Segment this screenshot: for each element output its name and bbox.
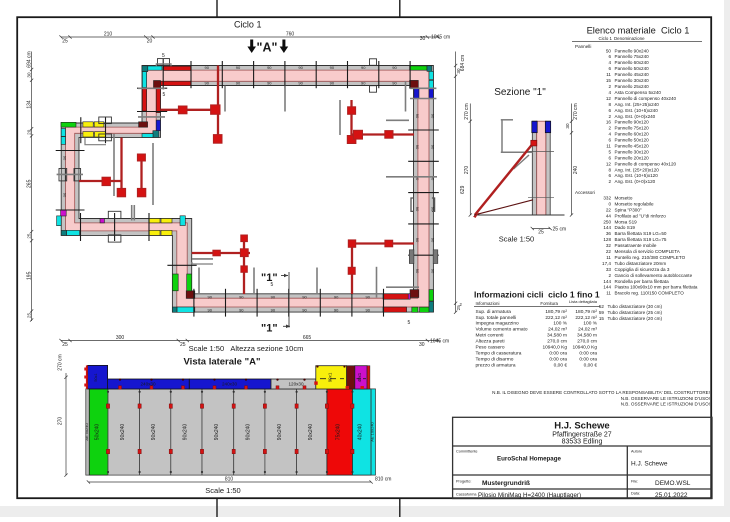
svg-text:90: 90 [415, 114, 420, 119]
svg-text:90: 90 [239, 308, 244, 313]
svg-text:Spina "P300": Spina "P300" [615, 207, 642, 212]
svg-text:2: 2 [608, 273, 611, 278]
svg-text:665: 665 [303, 335, 312, 341]
svg-text:Pannello 45x120: Pannello 45x120 [615, 144, 650, 149]
svg-text:180,79 m²: 180,79 m² [575, 309, 597, 315]
svg-text:H.J. Schewe: H.J. Schewe [554, 421, 609, 432]
svg-text:90: 90 [415, 238, 420, 243]
svg-text:270 cm: 270 cm [464, 103, 470, 119]
svg-text:Fornitura: Fornitura [540, 301, 558, 306]
svg-text:90: 90 [334, 308, 339, 313]
svg-text:6: 6 [608, 155, 611, 160]
svg-text:90: 90 [239, 295, 244, 300]
svg-text:6: 6 [608, 108, 611, 113]
svg-text:Dado S19: Dado S19 [615, 225, 636, 230]
svg-text:Pannello 45x240: Pannello 45x240 [615, 72, 650, 77]
svg-text:2: 2 [608, 126, 611, 131]
svg-text:144: 144 [603, 225, 611, 230]
svg-text:90x240: 90x240 [182, 424, 188, 441]
svg-text:Morsa S19: Morsa S19 [615, 219, 638, 224]
svg-text:222,12 m²: 222,12 m² [575, 315, 597, 321]
svg-text:Informazioni: Informazioni [476, 301, 500, 306]
svg-text:30: 30 [456, 68, 461, 74]
svg-text:H.J. Schewe: H.J. Schewe [631, 461, 668, 468]
svg-text:Data:: Data: [631, 492, 640, 496]
svg-text:90: 90 [267, 80, 272, 85]
svg-text:Pannello di compenso 40x120: Pannello di compenso 40x120 [615, 161, 677, 166]
svg-text:5: 5 [162, 53, 165, 59]
svg-text:90: 90 [302, 308, 307, 313]
svg-text:265: 265 [27, 179, 33, 188]
svg-text:Pilosio MiniMag H=2400 (Hauptl: Pilosio MiniMag H=2400 (Hauptlager) [478, 492, 581, 499]
svg-text:Tubo distanziatore (20 cm): Tubo distanziatore (20 cm) [608, 316, 663, 321]
svg-text:Barra filettata S19 LG=75: Barra filettata S19 LG=75 [615, 237, 667, 242]
svg-text:90: 90 [271, 295, 276, 300]
svg-text:Ang. Est. (0+0)x240: Ang. Est. (0+0)x240 [615, 114, 656, 119]
svg-text:Sezione "1": Sezione "1" [494, 87, 546, 98]
svg-text:32: 32 [606, 243, 612, 248]
svg-text:120x30: 120x30 [288, 381, 304, 386]
svg-text:11: 11 [606, 144, 611, 149]
svg-text:AE 5x240: AE 5x240 [84, 423, 89, 441]
svg-text:Lista dettagliata: Lista dettagliata [569, 299, 598, 304]
svg-text:Scale 1:50 Altezza sezione 1: Scale 1:50 Altezza sezione 10cm [189, 344, 304, 353]
svg-text:270,0 cm: 270,0 cm [577, 339, 597, 345]
svg-text:810: 810 [225, 477, 234, 483]
svg-text:8: 8 [608, 167, 611, 172]
svg-text:Pannello di compenso 40x240: Pannello di compenso 40x240 [615, 96, 677, 101]
svg-text:144: 144 [603, 285, 611, 290]
svg-text:24,02 m³: 24,02 m³ [548, 327, 567, 333]
svg-text:20: 20 [27, 129, 32, 135]
svg-text:50x240: 50x240 [95, 424, 101, 441]
svg-text:195: 195 [27, 271, 33, 280]
svg-text:90: 90 [334, 295, 339, 300]
svg-text:6: 6 [608, 66, 611, 71]
svg-text:25: 25 [27, 233, 32, 239]
svg-text:Ciclo 1: Ciclo 1 [234, 19, 262, 29]
svg-text:90: 90 [415, 269, 420, 274]
svg-text:10940,0 Kg: 10940,0 Kg [572, 345, 597, 351]
svg-text:Ang. Est. (0+0)x120: Ang. Est. (0+0)x120 [615, 179, 656, 184]
svg-text:N.B. IL DISEGNO DEVE ESSERE CO: N.B. IL DISEGNO DEVE ESSERE CONTROLLATO … [492, 390, 710, 395]
svg-text:10940,0 Kg: 10940,0 Kg [542, 345, 567, 351]
svg-text:222,12 m²: 222,12 m² [545, 315, 567, 321]
svg-text:Profilato ad "U"di rinforzo: Profilato ad "U"di rinforzo [615, 213, 667, 218]
svg-text:17,4: 17,4 [602, 261, 611, 266]
svg-text:128: 128 [603, 237, 611, 242]
svg-text:90x240: 90x240 [214, 424, 220, 441]
svg-text:332: 332 [603, 196, 611, 201]
svg-text:Mensola di servizio COMPLETA: Mensola di servizio COMPLETA [615, 249, 681, 254]
svg-text:Morsetto regolabile: Morsetto regolabile [615, 201, 655, 206]
svg-text:5: 5 [608, 149, 611, 154]
svg-text:90: 90 [204, 80, 209, 85]
svg-text:810 cm: 810 cm [375, 477, 391, 483]
svg-text:90: 90 [204, 65, 209, 70]
svg-text:Pannello 50x120: Pannello 50x120 [615, 138, 650, 143]
svg-text:"A": "A" [257, 41, 278, 55]
svg-text:4: 4 [608, 60, 611, 65]
svg-text:90: 90 [63, 156, 68, 161]
svg-text:Pannello 75x240: Pannello 75x240 [615, 54, 650, 59]
svg-text:Tubo distanziatore (25 cm): Tubo distanziatore (25 cm) [608, 310, 663, 315]
svg-text:33: 33 [606, 267, 612, 272]
svg-text:2: 2 [608, 179, 611, 184]
svg-text:AE 10x240: AE 10x240 [369, 421, 374, 441]
svg-text:30: 30 [419, 342, 425, 348]
svg-text:Impegna magazzino: Impegna magazzino [476, 321, 520, 327]
svg-text:15: 15 [606, 78, 612, 83]
svg-text:Tempo di casseratura: Tempo di casseratura [476, 350, 522, 356]
svg-text:prezzo di armatura: prezzo di armatura [476, 362, 516, 368]
svg-text:90: 90 [365, 295, 370, 300]
svg-text:240: 240 [573, 166, 579, 175]
svg-text:90: 90 [330, 80, 335, 85]
svg-text:24,02 m³: 24,02 m³ [578, 327, 597, 333]
svg-text:5: 5 [271, 282, 274, 288]
svg-text:270: 270 [464, 166, 470, 175]
svg-text:Pannello 25x240: Pannello 25x240 [615, 84, 650, 89]
svg-text:Cassaforma: Cassaforma [456, 493, 477, 497]
svg-text:25: 25 [27, 313, 32, 319]
svg-text:Scale 1:50: Scale 1:50 [205, 486, 240, 495]
svg-text:4: 4 [608, 90, 611, 95]
svg-text:250: 250 [603, 219, 611, 224]
svg-text:30: 30 [565, 123, 570, 129]
svg-text:90x240: 90x240 [308, 424, 314, 441]
svg-text:12: 12 [606, 161, 612, 166]
svg-text:90: 90 [207, 295, 212, 300]
svg-text:Pannello 75x120: Pannello 75x120 [615, 126, 650, 131]
svg-text:Denominazione: Denominazione [614, 36, 645, 41]
svg-text:5: 5 [163, 92, 166, 98]
svg-text:34,580 m: 34,580 m [577, 333, 597, 339]
svg-text:144: 144 [603, 279, 611, 284]
svg-text:2: 2 [608, 84, 611, 89]
svg-text:25: 25 [180, 342, 186, 348]
svg-text:0,00 €: 0,00 € [554, 362, 568, 368]
svg-text:Piastra 100x90x10 mm per barra: Piastra 100x90x10 mm per barra filettata [615, 285, 698, 290]
svg-text:"1": "1" [261, 323, 278, 335]
svg-text:0,00 €: 0,00 € [584, 362, 598, 368]
svg-text:File:: File: [631, 480, 638, 484]
svg-text:Informazioni cicli ciclo 1 fi: Informazioni cicli ciclo 1 fino 1 [474, 290, 600, 300]
svg-text:Tubo distanziatore 20mm: Tubo distanziatore 20mm [615, 261, 667, 266]
svg-text:4: 4 [608, 132, 611, 137]
svg-text:Sup. di armatura: Sup. di armatura [476, 309, 512, 315]
svg-text:90: 90 [236, 80, 241, 85]
svg-text:11: 11 [606, 291, 611, 296]
svg-text:270 cm: 270 cm [573, 103, 579, 119]
svg-text:Peso cassero: Peso cassero [476, 345, 505, 351]
svg-text:15: 15 [599, 316, 605, 321]
svg-text:12: 12 [606, 96, 612, 101]
svg-text:Metri correnti: Metri correnti [476, 333, 504, 339]
svg-text:6: 6 [608, 173, 611, 178]
svg-text:Volume cemento armato: Volume cemento armato [476, 327, 528, 333]
svg-text:Tempo di disarmo: Tempo di disarmo [476, 356, 514, 362]
svg-text:1045 cm: 1045 cm [430, 339, 449, 345]
svg-text:90x240: 90x240 [277, 424, 283, 441]
svg-text:Coppiglia di sicurezza da 3: Coppiglia di sicurezza da 3 [615, 267, 670, 272]
svg-text:90: 90 [361, 80, 366, 85]
svg-text:Bracolo reg. 110/150 COMPLETO: Bracolo reg. 110/150 COMPLETO [615, 291, 685, 296]
svg-text:90: 90 [415, 207, 420, 212]
svg-text:Morsetto: Morsetto [615, 196, 633, 201]
svg-text:0:00 ora: 0:00 ora [579, 350, 597, 356]
svg-text:90: 90 [431, 114, 436, 119]
svg-text:Pannello 60x240: Pannello 60x240 [615, 60, 650, 65]
svg-text:90: 90 [267, 65, 272, 70]
svg-text:90x240: 90x240 [245, 424, 251, 441]
svg-text:6: 6 [608, 54, 611, 59]
svg-text:Rondella per barra filettata: Rondella per barra filettata [615, 279, 670, 284]
svg-text:100 %: 100 % [553, 321, 567, 327]
svg-text:90: 90 [431, 269, 436, 274]
svg-text:59: 59 [599, 310, 605, 315]
svg-text:6: 6 [608, 138, 611, 143]
svg-text:210: 210 [104, 32, 113, 38]
svg-text:90: 90 [271, 308, 276, 313]
svg-text:40x1: 40x1 [357, 372, 362, 382]
svg-text:Progetto:: Progetto: [456, 480, 471, 484]
svg-text:240x30: 240x30 [140, 381, 156, 386]
svg-text:Altezza pareti: Altezza pareti [476, 339, 505, 345]
svg-text:Vista laterale "A": Vista laterale "A" [184, 357, 261, 368]
svg-text:1045 cm: 1045 cm [431, 35, 450, 41]
svg-text:Asta Compenso 5x240: Asta Compenso 5x240 [615, 90, 662, 95]
svg-text:30: 30 [420, 36, 426, 42]
svg-text:760: 760 [286, 32, 295, 38]
svg-text:90: 90 [330, 65, 335, 70]
svg-text:EuroSchal Homepage: EuroSchal Homepage [497, 456, 562, 463]
svg-text:Puntello reg. 210/380 COMPLETO: Puntello reg. 210/380 COMPLETO [615, 255, 686, 260]
svg-text:DEMO.WSL: DEMO.WSL [655, 480, 691, 487]
svg-text:Pannello 90x120: Pannello 90x120 [615, 120, 650, 125]
svg-text:Pannello 30x240: Pannello 30x240 [615, 78, 650, 83]
svg-text:270,0 cm: 270,0 cm [547, 339, 567, 345]
svg-text:11: 11 [606, 255, 611, 260]
svg-text:34,580 m: 34,580 m [547, 333, 567, 339]
svg-text:2: 2 [608, 114, 611, 119]
svg-text:90x1: 90x1 [328, 372, 333, 382]
svg-text:90: 90 [298, 80, 303, 85]
svg-text:90: 90 [298, 65, 303, 70]
svg-text:0: 0 [608, 201, 611, 206]
svg-text:Passatraente mobile: Passatraente mobile [615, 243, 657, 248]
svg-text:Ang. Est. (10+5)x120: Ang. Est. (10+5)x120 [615, 173, 659, 178]
svg-text:25: 25 [62, 342, 68, 348]
svg-text:90: 90 [365, 308, 370, 313]
svg-text:36: 36 [606, 231, 612, 236]
svg-text:90: 90 [431, 145, 436, 150]
svg-text:629: 629 [460, 185, 466, 194]
svg-text:Pannello 30x120: Pannello 30x120 [615, 149, 650, 154]
svg-text:22: 22 [606, 207, 612, 212]
svg-text:Committente: Committente [456, 450, 478, 454]
svg-text:90: 90 [431, 238, 436, 243]
svg-text:25.01.2022: 25.01.2022 [655, 492, 688, 499]
svg-text:Mustergrundriß: Mustergrundriß [482, 480, 530, 487]
svg-text:270 cm: 270 cm [58, 354, 64, 370]
svg-text:Scale 1:50: Scale 1:50 [499, 235, 534, 244]
svg-text:Tubo distanziatore (30 cm): Tubo distanziatore (30 cm) [608, 304, 663, 309]
svg-text:90x240: 90x240 [120, 424, 126, 441]
svg-text:Ciclo 1: Ciclo 1 [599, 36, 613, 41]
svg-text:N.B. OSSERVARE LE ISTRUZIONI D: N.B. OSSERVARE LE ISTRUZIONI D'USO! [621, 396, 710, 401]
svg-text:300: 300 [116, 335, 125, 341]
svg-text:Pannello 20x120: Pannello 20x120 [615, 155, 650, 160]
svg-text:44: 44 [606, 213, 612, 218]
svg-text:Elenco materiale Ciclo 1: Elenco materiale Ciclo 1 [587, 26, 690, 36]
svg-text:694 cm: 694 cm [27, 51, 33, 67]
svg-text:30: 30 [27, 72, 32, 78]
svg-text:22: 22 [606, 249, 612, 254]
svg-text:50x1: 50x1 [94, 373, 98, 381]
svg-text:50: 50 [606, 48, 612, 53]
svg-text:90: 90 [415, 145, 420, 150]
svg-text:25 cm: 25 cm [553, 227, 567, 233]
svg-text:75x240: 75x240 [336, 424, 342, 441]
svg-text:Autore: Autore [631, 450, 642, 454]
svg-text:134: 134 [27, 100, 33, 109]
svg-text:"1": "1" [261, 272, 278, 284]
svg-text:100 %: 100 % [583, 321, 597, 327]
svg-text:25: 25 [62, 39, 68, 45]
svg-text:0:00 ora: 0:00 ora [579, 356, 597, 362]
svg-text:90: 90 [392, 80, 397, 85]
svg-text:Sup. totale pannelli: Sup. totale pannelli [476, 315, 517, 321]
svg-text:8: 8 [608, 102, 611, 107]
svg-text:0:00 ora: 0:00 ora [549, 356, 567, 362]
svg-text:90: 90 [361, 65, 366, 70]
svg-text:0:00 ora: 0:00 ora [549, 350, 567, 356]
svg-text:240x30: 240x30 [222, 381, 238, 386]
svg-text:90: 90 [236, 65, 241, 70]
svg-text:N.B. OSSERVARE LE ISTRUZIONI D: N.B. OSSERVARE LE ISTRUZIONI D'USO! [621, 402, 710, 407]
svg-text:90: 90 [63, 193, 68, 198]
svg-text:Pannelli: Pannelli [575, 44, 591, 49]
svg-text:Ang. Int. (25+25)x240: Ang. Int. (25+25)x240 [615, 102, 660, 107]
svg-text:Pfaffingerstraße 27: Pfaffingerstraße 27 [552, 432, 612, 439]
svg-text:Pannello 50x240: Pannello 50x240 [615, 66, 650, 71]
svg-text:83533 Edling: 83533 Edling [562, 439, 603, 446]
svg-text:16: 16 [606, 120, 612, 125]
svg-text:90: 90 [207, 308, 212, 313]
svg-text:90: 90 [302, 295, 307, 300]
svg-text:Barra filettata S19 LG=50: Barra filettata S19 LG=50 [615, 231, 667, 236]
svg-text:11: 11 [606, 72, 611, 77]
svg-text:Accessori: Accessori [575, 190, 595, 195]
svg-text:Pannello 60x120: Pannello 60x120 [615, 132, 650, 137]
svg-text:Ang. Int. (25+20)x120: Ang. Int. (25+20)x120 [615, 167, 660, 172]
svg-text:40x240: 40x240 [358, 424, 364, 441]
svg-text:25: 25 [538, 230, 544, 236]
svg-text:Pannello 90x240: Pannello 90x240 [615, 48, 650, 53]
svg-text:90: 90 [392, 65, 397, 70]
svg-text:270: 270 [58, 417, 64, 426]
svg-text:90x240: 90x240 [151, 424, 157, 441]
svg-text:180,79 m²: 180,79 m² [545, 309, 567, 315]
svg-text:5: 5 [408, 320, 411, 326]
svg-text:20: 20 [147, 39, 153, 45]
svg-text:Ang. Est. (10+5)x240: Ang. Est. (10+5)x240 [615, 108, 659, 113]
svg-text:Gancio di sollevamento autoblo: Gancio di sollevamento autobloccante [615, 273, 693, 278]
